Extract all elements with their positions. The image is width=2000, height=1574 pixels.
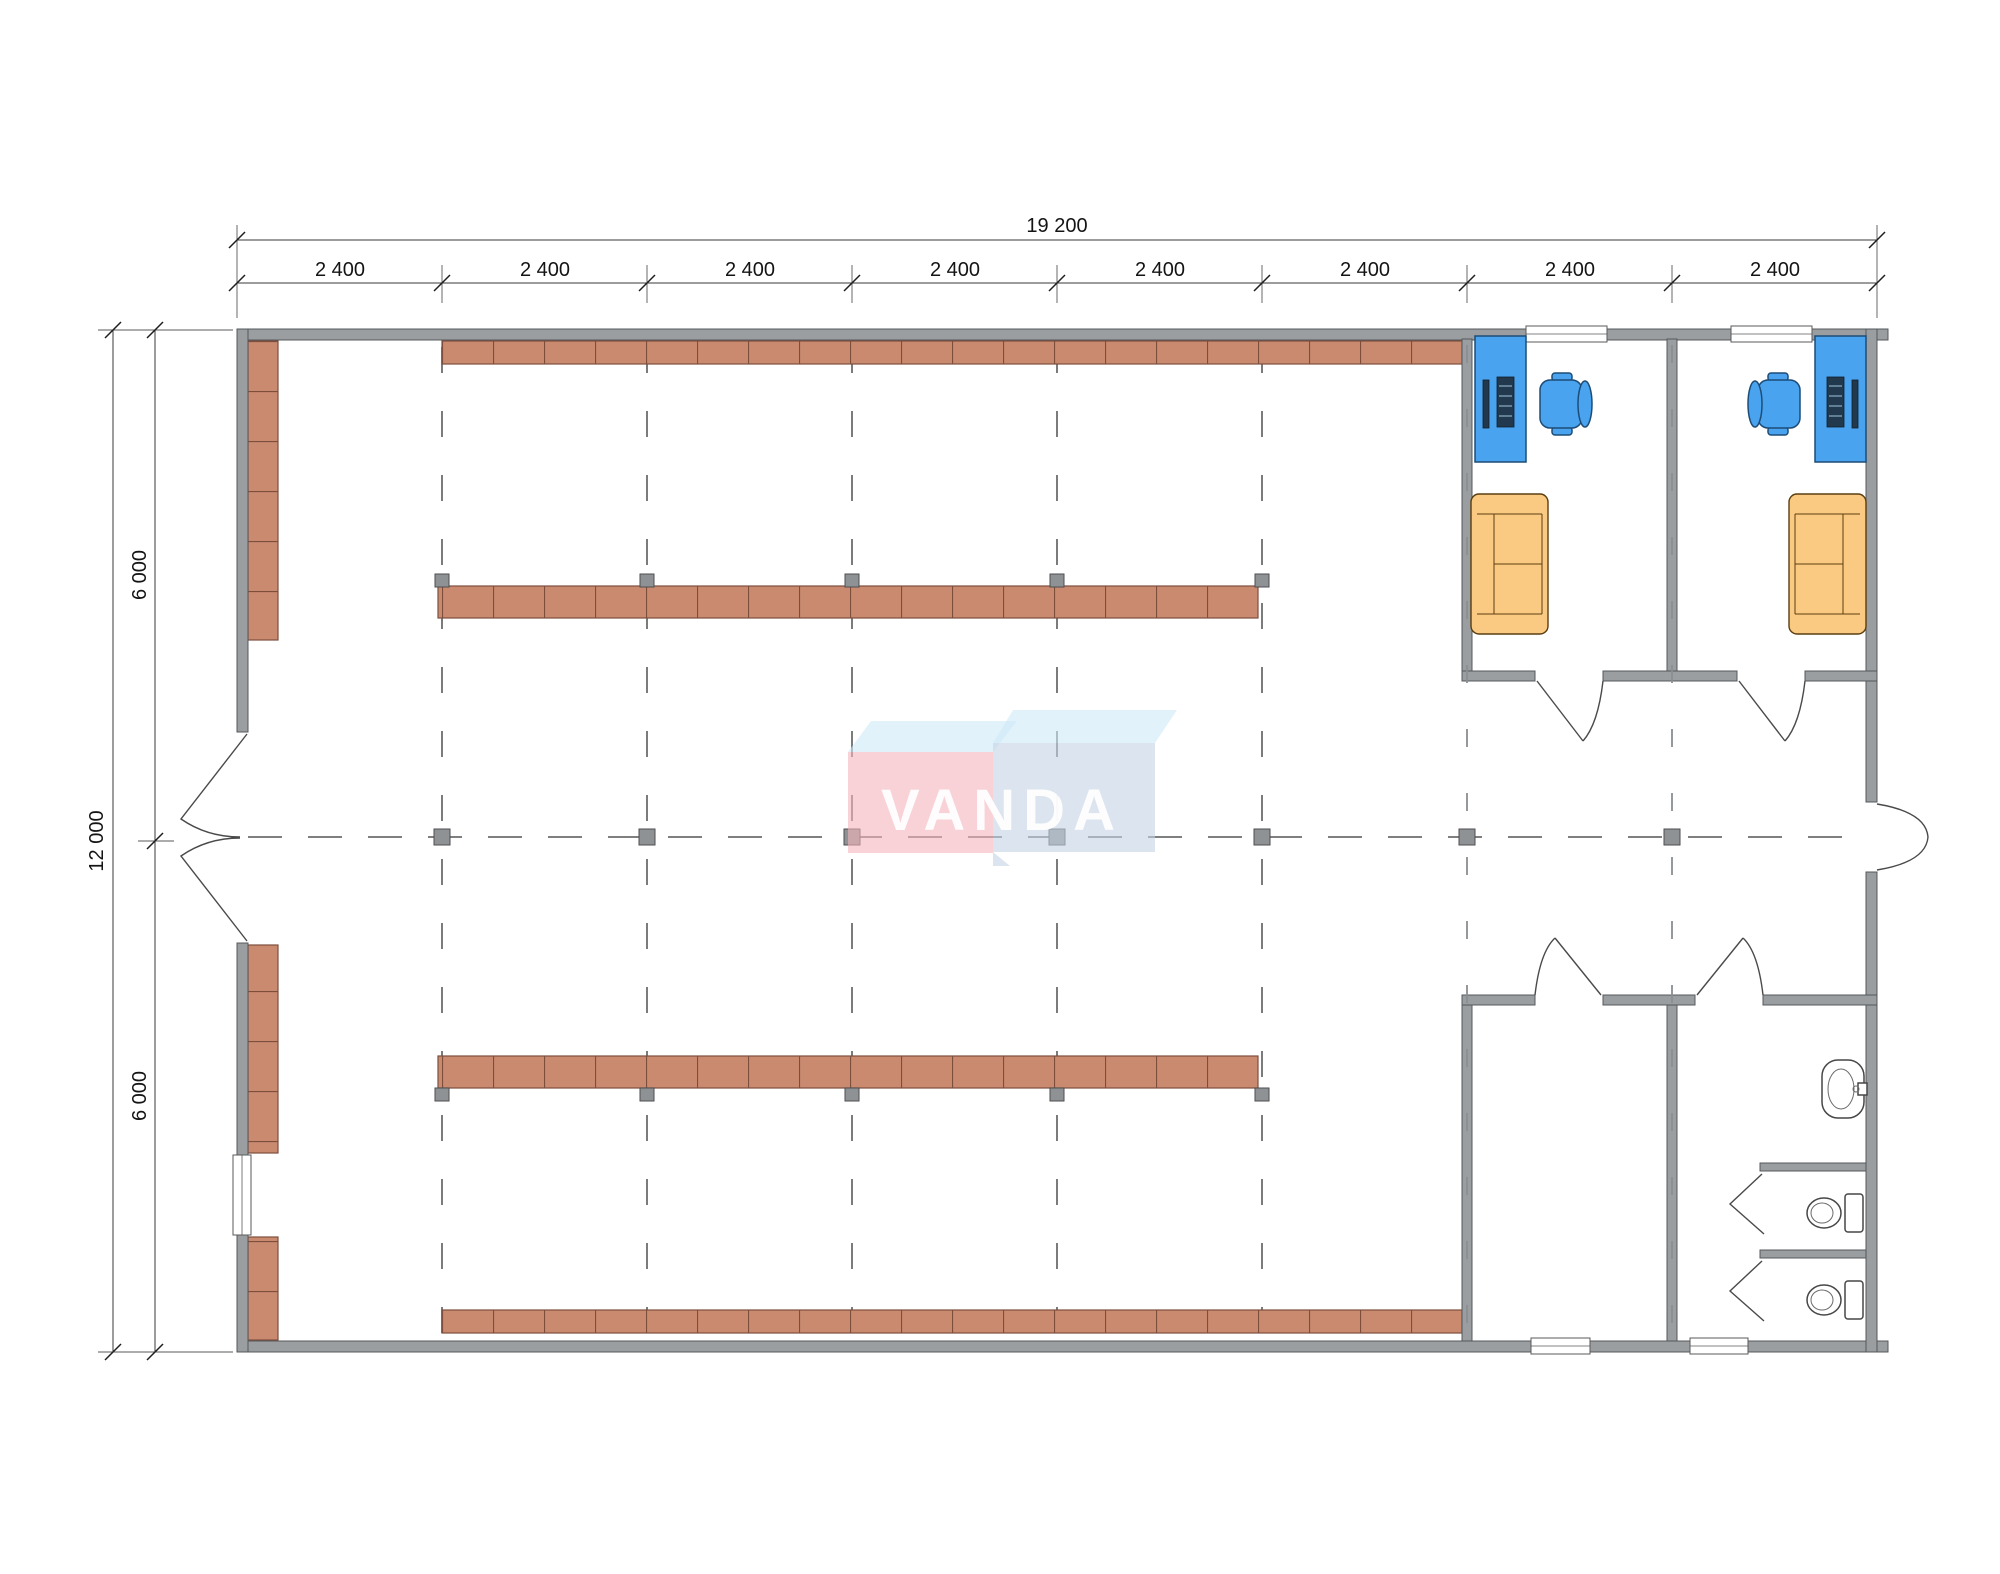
wall-backroom-top-seg xyxy=(1763,995,1877,1005)
shelf-row-upper-middle xyxy=(438,586,1258,618)
wall-exterior-left-upper xyxy=(237,329,248,732)
bathroom-fixtures xyxy=(1807,1060,1867,1319)
column xyxy=(845,1088,859,1101)
entrance-door-left-leaf-bottom xyxy=(181,838,247,941)
shelf-strip-left-upper xyxy=(248,341,278,640)
window xyxy=(1690,1338,1748,1354)
shelf-row-bottom xyxy=(442,1310,1462,1333)
wall-exterior-top xyxy=(237,329,1888,340)
floor-plan-drawing: VANDA 19 200 2 400 2 400 2 400 2 400 2 4… xyxy=(0,0,2000,1574)
wall-exterior-left-lower xyxy=(237,1235,248,1352)
wall-exterior-right-lower xyxy=(1866,872,1877,1352)
column xyxy=(639,829,655,845)
wall-office-bottom-seg xyxy=(1603,671,1737,681)
dim-label-bay: 2 400 xyxy=(1340,259,1390,281)
wall-office-bottom-seg xyxy=(1805,671,1877,681)
column xyxy=(845,574,859,587)
monitor-icon xyxy=(1483,380,1489,428)
column xyxy=(435,1088,449,1101)
office-chair xyxy=(1748,373,1800,435)
window xyxy=(1731,326,1812,342)
column xyxy=(640,1088,654,1101)
sink xyxy=(1822,1060,1867,1118)
monitor-icon xyxy=(1852,380,1858,428)
dim-label-half-height: 6 000 xyxy=(129,550,151,600)
wall-toilet-stall-partition xyxy=(1760,1250,1866,1258)
column xyxy=(1050,1088,1064,1101)
keyboard-icon xyxy=(1497,377,1514,427)
shelf-strip-left-mid xyxy=(248,945,278,1153)
dim-label-bay: 2 400 xyxy=(930,259,980,281)
window xyxy=(233,1155,251,1235)
shelf-row-lower-middle xyxy=(438,1056,1258,1088)
entrance-door-left-leaf-top xyxy=(181,734,247,837)
entrance-door-right-leaf-bottom xyxy=(1877,837,1928,870)
column xyxy=(1459,829,1475,845)
column xyxy=(640,574,654,587)
column xyxy=(1255,1088,1269,1101)
wall-office-divider xyxy=(1667,339,1677,671)
wall-toilet-stall-partition xyxy=(1760,1163,1866,1171)
column xyxy=(1255,574,1269,587)
dim-label-half-height: 6 000 xyxy=(129,1071,151,1121)
dim-label-bay: 2 400 xyxy=(315,259,365,281)
office-1-furniture xyxy=(1471,336,1592,634)
dim-label-bay: 2 400 xyxy=(1135,259,1185,281)
sofa xyxy=(1789,494,1866,634)
backroom-door xyxy=(1535,938,1601,995)
entrance-door-right-leaf-top xyxy=(1877,804,1928,837)
office-1-door xyxy=(1537,681,1603,741)
vanda-logo: VANDA xyxy=(848,710,1177,866)
wall-exterior-bottom xyxy=(237,1341,1888,1352)
toilet xyxy=(1807,1281,1863,1319)
column xyxy=(1664,829,1680,845)
shelf-row-top xyxy=(442,341,1462,364)
dim-label-bay: 2 400 xyxy=(1750,259,1800,281)
logo-wordmark: VANDA xyxy=(881,778,1123,843)
column xyxy=(1050,574,1064,587)
window xyxy=(1531,1338,1590,1354)
dim-label-total-height: 12 000 xyxy=(86,810,108,871)
logo-box-top-right xyxy=(993,710,1177,743)
wall-backroom-top-seg xyxy=(1603,995,1695,1005)
wall-office-bottom-seg xyxy=(1462,671,1535,681)
dim-label-bay: 2 400 xyxy=(1545,259,1595,281)
wall-backroom-top-seg xyxy=(1462,995,1535,1005)
window xyxy=(1526,326,1607,342)
bathroom-door xyxy=(1697,938,1763,995)
floor-plan-canvas: VANDA 19 200 2 400 2 400 2 400 2 400 2 4… xyxy=(0,0,2000,1574)
keyboard-icon xyxy=(1827,377,1844,427)
logo-box-edge xyxy=(993,852,1010,866)
toilet-stall-door xyxy=(1730,1261,1764,1321)
dim-label-bay: 2 400 xyxy=(520,259,570,281)
dim-label-bay: 2 400 xyxy=(725,259,775,281)
column xyxy=(435,574,449,587)
logo-box-top-left xyxy=(848,721,1017,752)
office-2-door xyxy=(1739,681,1805,741)
office-2-furniture xyxy=(1748,336,1866,634)
column xyxy=(434,829,450,845)
wall-exterior-left-mid xyxy=(237,943,248,1157)
toilet-stall-door xyxy=(1730,1174,1764,1234)
wall-exterior-right-upper xyxy=(1866,329,1877,802)
office-chair xyxy=(1540,373,1592,435)
dim-label-total-width: 19 200 xyxy=(1026,215,1087,237)
sofa xyxy=(1471,494,1548,634)
toilet xyxy=(1807,1194,1863,1232)
column xyxy=(1254,829,1270,845)
shelf-strip-left-lower xyxy=(248,1237,278,1340)
